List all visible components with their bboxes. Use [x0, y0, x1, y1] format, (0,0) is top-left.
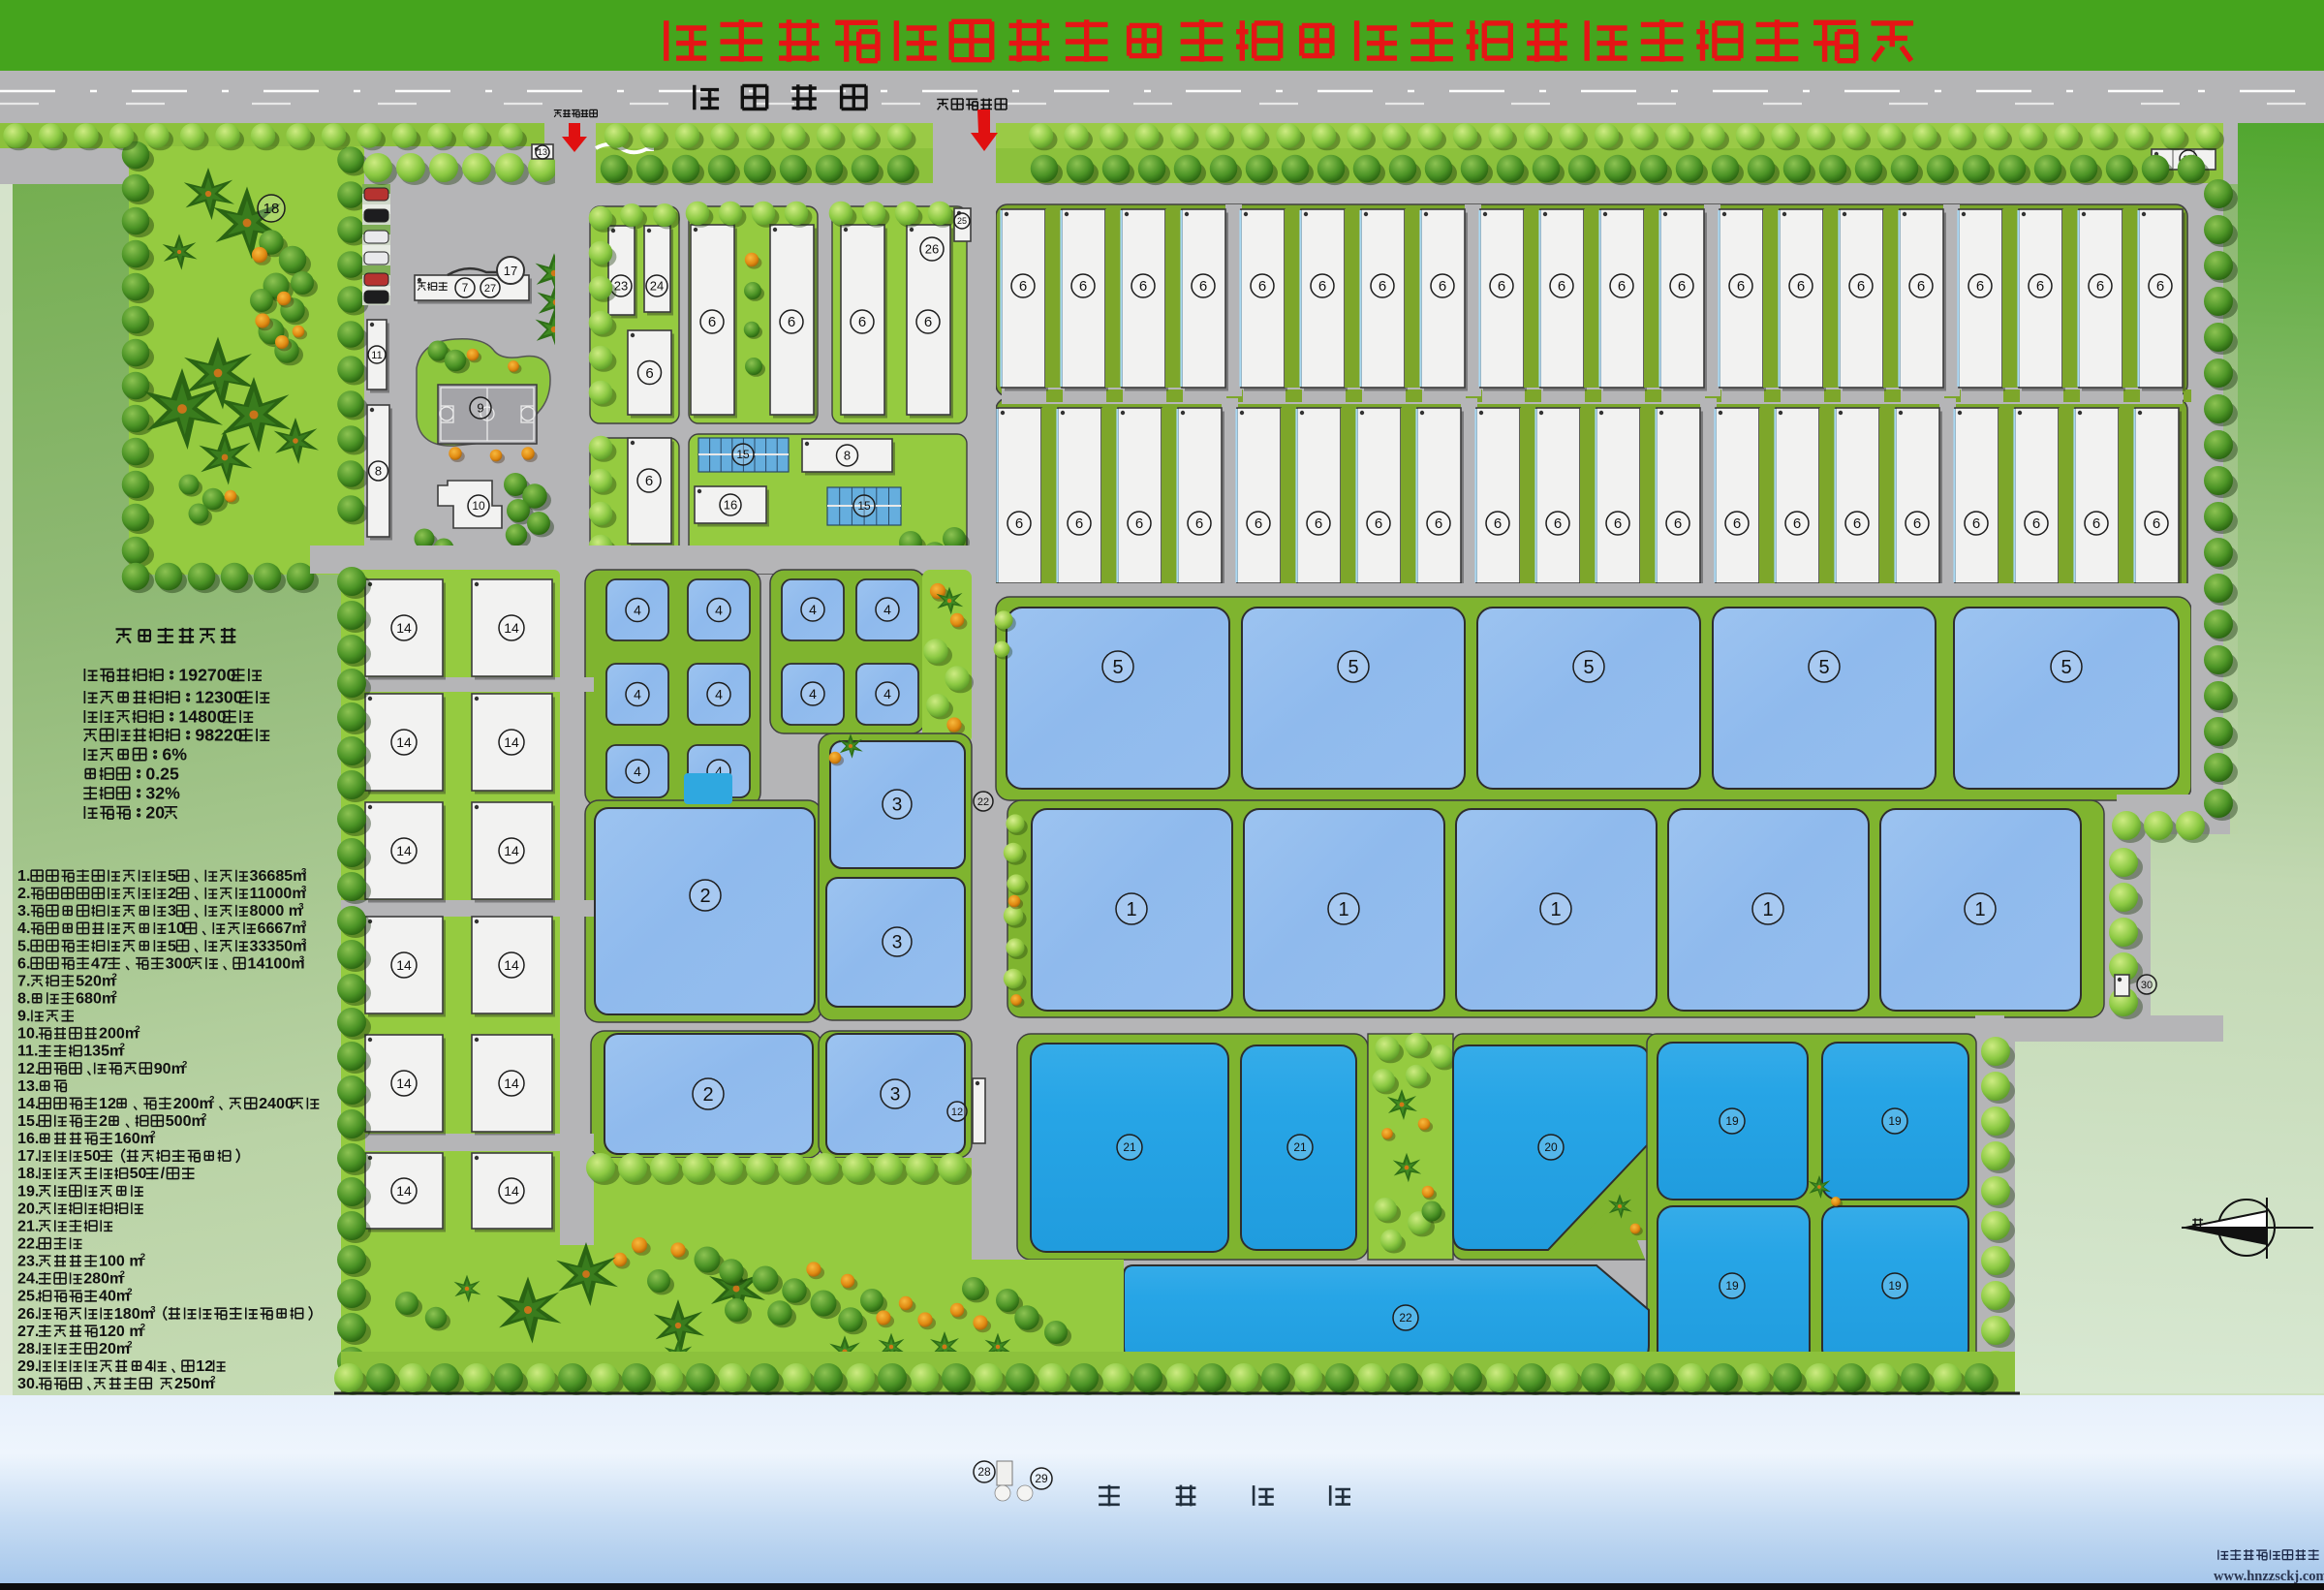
svg-text:6: 6	[1135, 515, 1143, 532]
svg-text:2: 2	[182, 1059, 187, 1070]
svg-text:14100m: 14100m	[248, 954, 305, 972]
svg-text:4: 4	[883, 602, 891, 617]
svg-text:14: 14	[504, 957, 519, 973]
svg-text:6: 6	[1079, 278, 1087, 295]
svg-text:14: 14	[504, 843, 519, 858]
svg-text:2.: 2.	[17, 885, 30, 902]
svg-text:6: 6	[1255, 515, 1262, 532]
svg-text:0.25: 0.25	[145, 764, 179, 783]
svg-text:14: 14	[504, 734, 519, 750]
svg-text:2: 2	[140, 1252, 145, 1263]
svg-text:14: 14	[396, 957, 412, 973]
svg-text:14: 14	[504, 1076, 519, 1091]
svg-text:6: 6	[1139, 278, 1147, 295]
svg-text:2: 2	[699, 886, 710, 907]
svg-text:8.: 8.	[17, 990, 30, 1008]
svg-text:33350m: 33350m	[250, 937, 307, 954]
svg-text:16: 16	[724, 498, 737, 513]
svg-text:500m: 500m	[166, 1112, 205, 1130]
svg-text:6667m: 6667m	[258, 920, 306, 937]
svg-text:19: 19	[1888, 1114, 1902, 1128]
svg-text:23.: 23.	[17, 1253, 39, 1270]
svg-text:4: 4	[634, 764, 641, 779]
svg-text:3: 3	[892, 795, 903, 816]
svg-text:4: 4	[634, 686, 641, 701]
svg-text:4: 4	[809, 602, 817, 617]
svg-text:19: 19	[1725, 1114, 1739, 1128]
svg-text:20: 20	[145, 802, 165, 822]
svg-text:24: 24	[650, 279, 664, 294]
svg-text:6: 6	[1015, 515, 1023, 532]
svg-text:680m: 680m	[76, 990, 115, 1008]
svg-text:135m: 135m	[83, 1043, 123, 1060]
svg-text:2: 2	[135, 1024, 139, 1035]
svg-text:14: 14	[396, 843, 412, 858]
svg-text:5: 5	[1112, 657, 1123, 678]
svg-text:14: 14	[396, 1076, 412, 1091]
svg-text:6: 6	[1498, 278, 1505, 295]
svg-text:17.: 17.	[17, 1147, 39, 1165]
svg-text:1: 1	[1762, 899, 1773, 920]
svg-text:27: 27	[484, 283, 496, 295]
svg-text:6: 6	[1793, 515, 1801, 532]
svg-text:2: 2	[120, 1042, 125, 1052]
svg-text:4: 4	[715, 602, 723, 617]
svg-text:6: 6	[1913, 515, 1921, 532]
svg-text:8000 m: 8000 m	[250, 902, 303, 920]
svg-text:2: 2	[112, 972, 117, 982]
svg-text:120 m: 120 m	[99, 1323, 143, 1340]
svg-text:12: 12	[951, 1107, 963, 1118]
svg-text:6: 6	[788, 314, 795, 330]
svg-text:2: 2	[112, 989, 117, 1000]
svg-text:8: 8	[375, 464, 382, 479]
svg-text:5: 5	[1348, 657, 1358, 678]
svg-text:6: 6	[645, 473, 653, 489]
svg-text:3: 3	[150, 1304, 155, 1315]
svg-text:12: 12	[196, 1357, 213, 1375]
svg-text:280m: 280m	[83, 1270, 123, 1288]
svg-text:50: 50	[83, 1147, 101, 1165]
svg-text:7: 7	[462, 281, 469, 295]
svg-text:14800: 14800	[178, 706, 226, 726]
svg-text:6: 6	[1976, 278, 1984, 295]
svg-text:3: 3	[892, 933, 903, 953]
svg-text:3: 3	[299, 954, 304, 965]
svg-text:4: 4	[634, 602, 641, 617]
svg-text:26: 26	[925, 242, 939, 257]
svg-text:6: 6	[708, 314, 716, 330]
svg-text:2: 2	[209, 1094, 214, 1105]
svg-text:10: 10	[472, 499, 485, 513]
svg-text:6: 6	[1737, 278, 1745, 295]
svg-text:2: 2	[127, 1339, 132, 1350]
svg-text:6: 6	[1797, 278, 1805, 295]
svg-text:9: 9	[477, 401, 483, 416]
svg-text:6: 6	[1674, 515, 1682, 532]
svg-text:6: 6	[1258, 278, 1266, 295]
svg-text:29: 29	[1035, 1472, 1048, 1485]
svg-text:11: 11	[371, 350, 382, 361]
svg-text:6: 6	[645, 365, 653, 382]
svg-text:6: 6	[2092, 515, 2100, 532]
svg-text:192700: 192700	[178, 665, 235, 684]
svg-text:6: 6	[1439, 278, 1446, 295]
svg-text:13.: 13.	[17, 1077, 39, 1095]
svg-text:6: 6	[1558, 278, 1565, 295]
svg-text:6: 6	[2032, 515, 2040, 532]
svg-text:3: 3	[301, 867, 306, 878]
svg-text:6: 6	[1614, 515, 1622, 532]
svg-text:6: 6	[1494, 515, 1502, 532]
svg-text:6: 6	[2156, 278, 2164, 295]
svg-text:www.hnzzsckj.com: www.hnzzsckj.com	[2214, 1569, 2324, 1584]
svg-text:6: 6	[1375, 515, 1382, 532]
svg-text:/: /	[161, 1165, 166, 1182]
svg-text:11000m: 11000m	[250, 885, 306, 902]
svg-text:200m: 200m	[99, 1025, 139, 1043]
svg-text:2: 2	[127, 1287, 132, 1297]
svg-text:22: 22	[977, 796, 989, 808]
svg-text:20: 20	[1544, 1140, 1558, 1154]
svg-text:19: 19	[1888, 1279, 1902, 1293]
svg-text:26.: 26.	[17, 1305, 39, 1323]
svg-text:6: 6	[1315, 515, 1322, 532]
svg-text:14.: 14.	[17, 1095, 39, 1112]
svg-text:22: 22	[1399, 1311, 1412, 1325]
svg-text:28: 28	[977, 1465, 991, 1479]
svg-text:30.: 30.	[17, 1375, 39, 1392]
svg-text:36685m: 36685m	[250, 867, 307, 885]
svg-text:29.: 29.	[17, 1357, 39, 1375]
svg-text:6: 6	[2036, 278, 2044, 295]
svg-text:160m: 160m	[114, 1130, 154, 1147]
svg-text:16.: 16.	[17, 1130, 39, 1147]
svg-text:300: 300	[166, 954, 192, 972]
svg-text:12300: 12300	[195, 687, 242, 706]
svg-text:20m: 20m	[99, 1340, 130, 1357]
svg-text:6: 6	[1972, 515, 1980, 532]
svg-text:4.: 4.	[17, 920, 30, 937]
svg-text:2: 2	[201, 1112, 206, 1123]
svg-text:4: 4	[883, 686, 891, 701]
svg-text:12.: 12.	[17, 1060, 39, 1077]
svg-text:12: 12	[99, 1095, 116, 1112]
svg-text:6: 6	[1618, 278, 1626, 295]
svg-text:2: 2	[168, 885, 176, 902]
svg-text:6: 6	[924, 314, 932, 330]
svg-text:180m: 180m	[114, 1305, 154, 1323]
svg-text:6.: 6.	[17, 954, 30, 972]
svg-text:6: 6	[1733, 515, 1741, 532]
svg-text:21.: 21.	[17, 1217, 39, 1234]
svg-text:14: 14	[396, 1183, 412, 1199]
svg-text:25: 25	[957, 216, 967, 226]
svg-text:6: 6	[1019, 278, 1027, 295]
svg-text:98220: 98220	[195, 725, 242, 744]
svg-text:2: 2	[99, 1112, 108, 1130]
svg-text:18.: 18.	[17, 1165, 39, 1182]
svg-text:10: 10	[168, 920, 185, 937]
svg-text:18: 18	[263, 201, 280, 217]
svg-text:5.: 5.	[17, 937, 30, 954]
svg-text:6: 6	[858, 314, 866, 330]
svg-text:4: 4	[715, 686, 723, 701]
svg-text:2: 2	[120, 1269, 125, 1280]
svg-text:14: 14	[504, 620, 519, 636]
svg-text:6: 6	[1678, 278, 1686, 295]
svg-text:21: 21	[1123, 1140, 1136, 1154]
svg-text:17: 17	[504, 264, 517, 278]
svg-text:6: 6	[1853, 515, 1861, 532]
svg-text:3: 3	[298, 902, 303, 913]
svg-text:3: 3	[890, 1085, 901, 1106]
svg-text:6: 6	[2096, 278, 2104, 295]
svg-text:6: 6	[1435, 515, 1442, 532]
svg-text:21: 21	[1293, 1140, 1307, 1154]
svg-text:40m: 40m	[99, 1288, 130, 1305]
svg-text:11.: 11.	[17, 1043, 38, 1060]
svg-text:1: 1	[1338, 899, 1348, 920]
svg-text:2: 2	[210, 1375, 215, 1386]
svg-text:6: 6	[1917, 278, 1925, 295]
svg-text:24.: 24.	[17, 1270, 39, 1288]
svg-text:30: 30	[2141, 980, 2153, 991]
svg-text:3: 3	[301, 885, 306, 895]
svg-text:50: 50	[130, 1165, 147, 1182]
svg-text:8: 8	[844, 449, 851, 463]
svg-text:5: 5	[2061, 657, 2071, 678]
svg-text:2: 2	[140, 1322, 145, 1332]
svg-text:1.: 1.	[17, 867, 30, 885]
svg-text:3: 3	[301, 937, 306, 948]
svg-text:250m: 250m	[174, 1375, 214, 1392]
svg-text:6: 6	[2153, 515, 2160, 532]
svg-text:19: 19	[1725, 1279, 1739, 1293]
svg-text:5: 5	[168, 937, 176, 954]
svg-text:3.: 3.	[17, 902, 30, 920]
svg-text:6: 6	[1554, 515, 1562, 532]
svg-text:15: 15	[736, 448, 750, 461]
svg-text:32%: 32%	[145, 783, 180, 802]
svg-text:15: 15	[857, 499, 871, 513]
svg-text:19.: 19.	[17, 1182, 39, 1200]
svg-text:13: 13	[538, 147, 547, 157]
svg-text:1: 1	[1974, 899, 1985, 920]
svg-text:25.: 25.	[17, 1288, 39, 1305]
svg-text:2: 2	[702, 1084, 713, 1106]
svg-text:28.: 28.	[17, 1340, 39, 1357]
svg-text:6%: 6%	[162, 744, 187, 764]
svg-text:6: 6	[1379, 278, 1386, 295]
svg-text:520m: 520m	[76, 972, 115, 989]
svg-text:6: 6	[1857, 278, 1865, 295]
svg-text:6: 6	[1199, 278, 1207, 295]
svg-text:3: 3	[168, 902, 176, 920]
svg-text:14: 14	[396, 734, 412, 750]
svg-text:14: 14	[504, 1183, 519, 1199]
svg-text:9.: 9.	[17, 1008, 30, 1025]
svg-text:4: 4	[144, 1357, 153, 1375]
svg-text:5: 5	[1818, 657, 1829, 678]
svg-text:2400: 2400	[259, 1095, 294, 1112]
svg-text:15.: 15.	[17, 1112, 39, 1130]
svg-text:5: 5	[168, 867, 176, 885]
svg-text:90m: 90m	[154, 1060, 185, 1077]
svg-text:27.: 27.	[17, 1323, 39, 1340]
svg-text:7.: 7.	[17, 972, 30, 989]
svg-text:3: 3	[301, 920, 306, 930]
svg-text:10.: 10.	[17, 1025, 39, 1043]
svg-text:200m: 200m	[173, 1095, 213, 1112]
svg-text:6: 6	[1075, 515, 1083, 532]
svg-text:100 m: 100 m	[99, 1253, 143, 1270]
svg-text:22.: 22.	[17, 1235, 39, 1253]
svg-text:1: 1	[1550, 899, 1561, 920]
svg-text:6: 6	[1318, 278, 1326, 295]
svg-text:20.: 20.	[17, 1200, 39, 1217]
svg-text:2: 2	[150, 1130, 155, 1140]
svg-text:14: 14	[396, 620, 412, 636]
svg-text:1: 1	[1126, 899, 1136, 920]
svg-text:5: 5	[1583, 657, 1594, 678]
svg-text:47: 47	[91, 954, 108, 972]
svg-text:4: 4	[809, 686, 817, 701]
svg-text:6: 6	[1195, 515, 1203, 532]
